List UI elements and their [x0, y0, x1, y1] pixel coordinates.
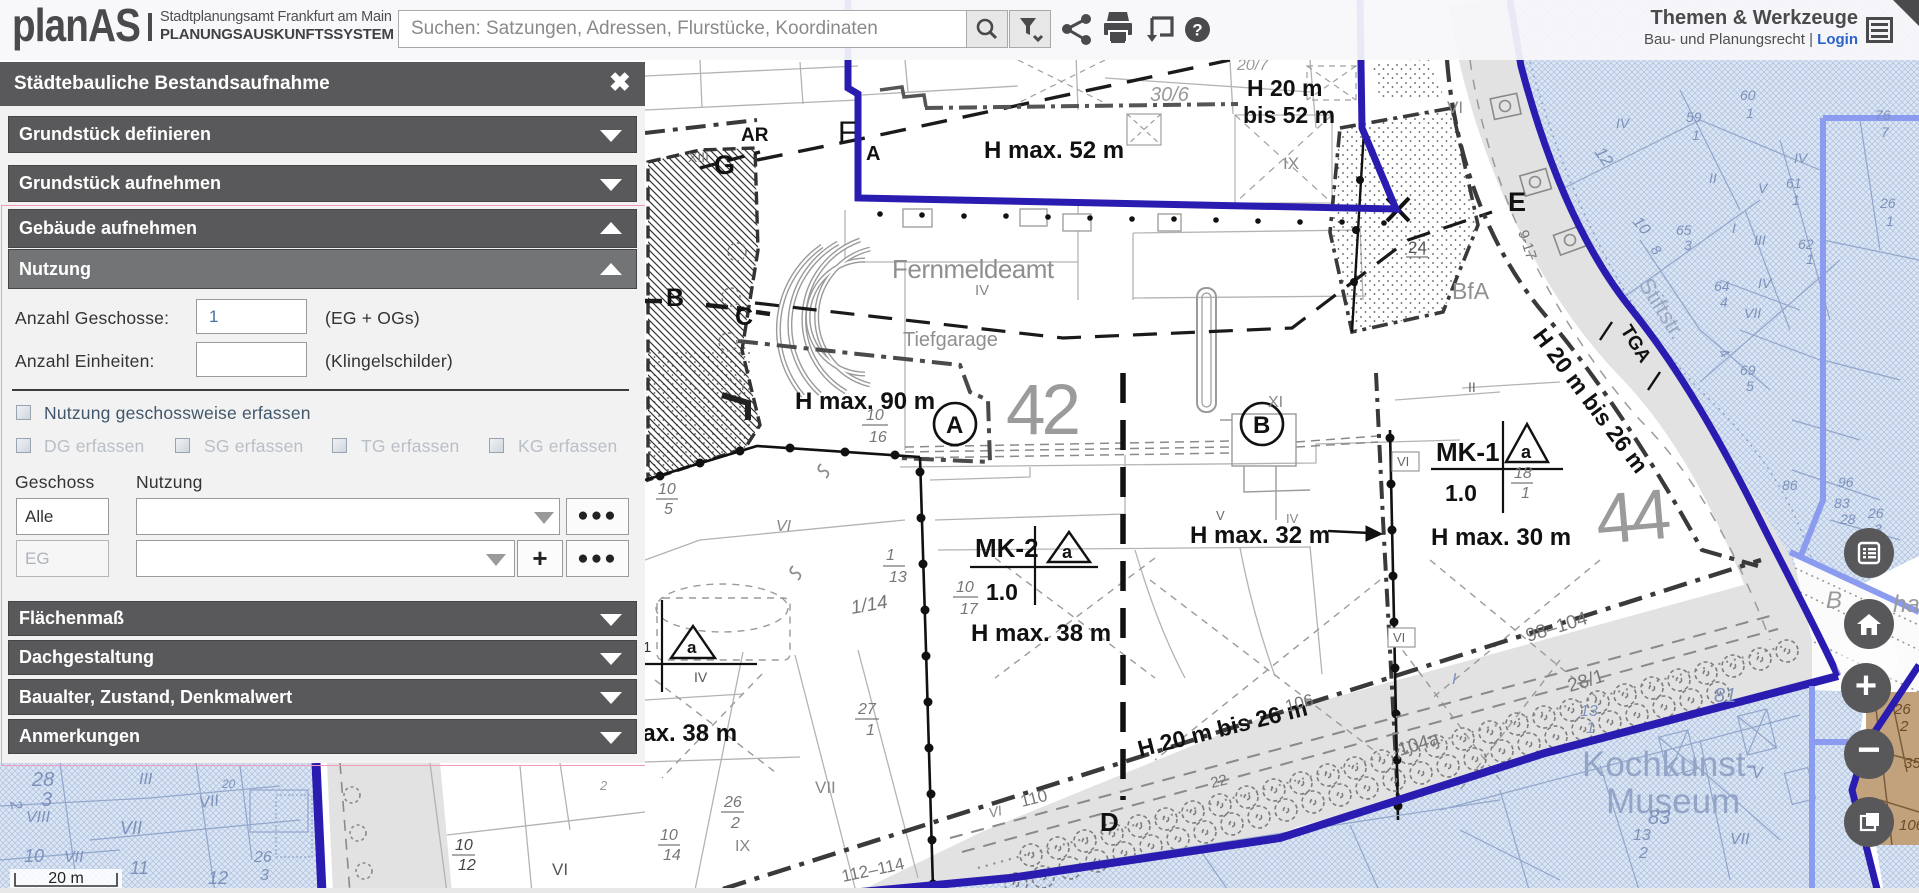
svg-text:IX: IX — [1283, 154, 1299, 173]
svg-text:83: 83 — [1834, 495, 1850, 511]
svg-text:1: 1 — [1586, 720, 1595, 737]
svg-text:3: 3 — [260, 867, 269, 884]
svg-text:A: A — [946, 412, 963, 439]
svg-text:13: 13 — [1633, 827, 1651, 844]
svg-text:1: 1 — [866, 722, 875, 739]
svg-text:59: 59 — [1686, 109, 1702, 125]
svg-text:1.0: 1.0 — [1445, 480, 1477, 506]
svg-text:1: 1 — [886, 547, 895, 564]
svg-text:XI: XI — [1268, 394, 1283, 411]
svg-text:C: C — [735, 303, 753, 331]
svg-text:12: 12 — [458, 857, 476, 874]
svg-text:81: 81 — [1714, 685, 1736, 707]
svg-text:H max. 30 m: H max. 30 m — [1431, 524, 1571, 551]
svg-text:1: 1 — [1886, 213, 1894, 229]
svg-text:VI: VI — [552, 860, 568, 879]
svg-text:H max. 52 m: H max. 52 m — [984, 137, 1124, 164]
svg-text:VI: VI — [1447, 98, 1463, 117]
svg-text:G: G — [714, 150, 735, 180]
svg-text:II: II — [1709, 170, 1717, 186]
svg-text:VII: VII — [1730, 831, 1750, 848]
svg-text:1: 1 — [1792, 192, 1800, 208]
svg-text:Fernmeldeamt: Fernmeldeamt — [892, 254, 1055, 284]
svg-text:IV: IV — [1794, 150, 1809, 166]
svg-text:IV: IV — [1758, 275, 1773, 291]
svg-text:10: 10 — [866, 407, 884, 424]
svg-text:5: 5 — [664, 501, 673, 518]
svg-text:13: 13 — [889, 569, 907, 586]
svg-text:1.0: 1.0 — [986, 579, 1018, 605]
svg-text:B: B — [1253, 412, 1270, 439]
svg-text:MK-2: MK-2 — [975, 533, 1039, 563]
svg-text:VI: VI — [1393, 630, 1405, 645]
svg-text:1: 1 — [1692, 127, 1700, 143]
svg-text:2: 2 — [1899, 718, 1909, 735]
svg-text:60: 60 — [1740, 87, 1756, 103]
svg-text:BfA: BfA — [1452, 278, 1490, 304]
svg-text:a: a — [687, 638, 697, 657]
svg-text:VII: VII — [198, 792, 220, 812]
svg-text:F: F — [838, 116, 856, 149]
svg-text:a: a — [1521, 442, 1532, 462]
svg-text:61: 61 — [1786, 175, 1802, 191]
svg-text:96: 96 — [1838, 474, 1854, 490]
svg-text:hau: hau — [1893, 591, 1919, 618]
svg-text:1: 1 — [1806, 251, 1814, 267]
svg-text:28: 28 — [1839, 511, 1856, 527]
svg-text:76: 76 — [1875, 107, 1891, 123]
svg-text:IV: IV — [975, 282, 989, 299]
svg-text:65: 65 — [1676, 222, 1692, 238]
svg-text:IV: IV — [694, 669, 708, 685]
svg-text:106: 106 — [1899, 817, 1919, 834]
svg-text:AR: AR — [741, 125, 769, 146]
svg-text:Museum: Museum — [1606, 782, 1740, 821]
svg-text:B: B — [666, 284, 684, 312]
svg-text:1: 1 — [1746, 105, 1754, 121]
svg-text:62: 62 — [1798, 236, 1814, 252]
svg-text:12: 12 — [208, 868, 228, 888]
svg-text:I: I — [1452, 671, 1457, 688]
svg-text:VII: VII — [815, 778, 836, 797]
svg-text:3: 3 — [41, 789, 52, 811]
svg-text:7: 7 — [1881, 124, 1890, 140]
svg-text:V: V — [1752, 765, 1764, 782]
svg-text:2: 2 — [730, 815, 740, 832]
svg-text:13: 13 — [1580, 703, 1598, 720]
svg-text:44: 44 — [1593, 475, 1673, 560]
svg-text:86: 86 — [1782, 477, 1798, 493]
svg-text:10: 10 — [660, 827, 678, 844]
svg-text:69: 69 — [1740, 362, 1756, 378]
svg-text:VI: VI — [776, 518, 792, 535]
svg-text:2: 2 — [599, 778, 608, 793]
svg-text:10: 10 — [24, 846, 44, 866]
svg-text:VI: VI — [1397, 454, 1409, 469]
svg-text:A: A — [866, 143, 880, 165]
svg-text:IV: IV — [1616, 115, 1631, 131]
svg-text:28: 28 — [31, 769, 54, 791]
svg-text:18: 18 — [1514, 465, 1532, 482]
svg-text:H 20 m: H 20 m — [1247, 75, 1322, 101]
svg-text:1: 1 — [1521, 485, 1530, 502]
svg-text:20: 20 — [221, 777, 236, 791]
svg-text:VII: VII — [64, 849, 84, 866]
svg-text:10: 10 — [455, 837, 473, 854]
svg-text:II: II — [1468, 379, 1476, 395]
svg-text:30/6: 30/6 — [1150, 84, 1190, 106]
svg-text:?: ? — [1192, 21, 1202, 40]
svg-text:10: 10 — [658, 481, 676, 498]
svg-text:B: B — [1826, 587, 1842, 614]
svg-text:VII: VII — [1744, 305, 1761, 321]
svg-text:3: 3 — [1684, 237, 1692, 253]
svg-text:H max. 38 m: H max. 38 m — [971, 620, 1111, 647]
svg-text:H max. 32 m: H max. 32 m — [1190, 522, 1330, 549]
svg-text:10: 10 — [956, 579, 974, 596]
svg-text:III: III — [1754, 232, 1766, 248]
svg-text:bis 52 m: bis 52 m — [1243, 102, 1335, 128]
svg-text:27: 27 — [857, 701, 877, 718]
svg-text:16: 16 — [869, 429, 887, 446]
svg-text:64: 64 — [1714, 278, 1730, 294]
svg-text:26: 26 — [253, 849, 272, 866]
svg-text:I: I — [1732, 220, 1736, 236]
svg-text:MK-1: MK-1 — [1436, 437, 1500, 467]
svg-text:V: V — [1216, 508, 1225, 523]
svg-text:83: 83 — [1648, 807, 1670, 829]
svg-text:26: 26 — [723, 794, 742, 811]
svg-text:a: a — [1062, 542, 1073, 562]
svg-text:IV: IV — [1286, 511, 1299, 526]
svg-text:Tiefgarage: Tiefgarage — [903, 329, 998, 351]
svg-text:24: 24 — [1408, 238, 1427, 257]
svg-text:III: III — [139, 771, 153, 788]
svg-text:26: 26 — [1867, 505, 1884, 521]
svg-text:VII: VII — [120, 818, 142, 838]
svg-text:42: 42 — [1006, 371, 1077, 450]
svg-text:4: 4 — [1720, 294, 1728, 310]
svg-text:2: 2 — [1638, 845, 1648, 862]
svg-text:Kochkunst-: Kochkunst- — [1582, 745, 1757, 784]
svg-text:IX: IX — [735, 838, 750, 855]
svg-text:XIII: XIII — [688, 149, 709, 165]
svg-text:26: 26 — [1879, 195, 1896, 211]
svg-text:17: 17 — [960, 601, 979, 618]
svg-text:5: 5 — [1746, 378, 1754, 394]
svg-text:14: 14 — [663, 847, 681, 864]
svg-text:26: 26 — [1893, 701, 1911, 718]
svg-text:35: 35 — [1904, 755, 1919, 772]
svg-text:E: E — [1508, 187, 1526, 217]
svg-text:11: 11 — [130, 858, 149, 878]
svg-text:VIII: VIII — [26, 809, 51, 826]
svg-text:D: D — [1100, 807, 1119, 837]
